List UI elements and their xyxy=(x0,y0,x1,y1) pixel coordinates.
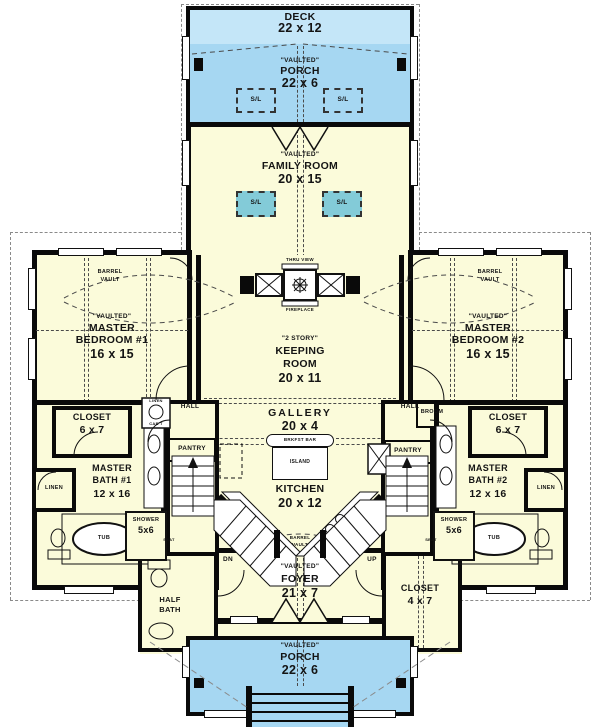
fireplace-wall xyxy=(240,276,254,294)
master-bath-2-label2: BATH #2 xyxy=(448,476,528,485)
toilet-icon xyxy=(148,560,170,569)
linen-label: LINEN xyxy=(33,486,75,492)
refrigerator-icon xyxy=(220,444,242,478)
master-bedroom-2-note: "VAULTED" xyxy=(438,314,538,321)
up-label: UP xyxy=(358,557,386,564)
master-bedroom-2-label: MASTER xyxy=(438,323,538,334)
foyer-closet-label: CLOSET xyxy=(390,584,450,593)
keeping-room-dims: 20 x 11 xyxy=(250,372,350,385)
tub-label: TUB xyxy=(474,536,514,542)
keeping-room-label: KEEPING xyxy=(250,346,350,357)
barrel-vault-label: BARREL xyxy=(278,536,322,541)
master-bedroom-1-dims: 16 x 15 xyxy=(62,348,162,361)
breakfast-bar-label: BRKFST BAR xyxy=(266,438,334,443)
fireplace-wall xyxy=(346,276,360,294)
barrel-vault-label: VAULT xyxy=(82,278,138,284)
family-room-dims: 20 x 15 xyxy=(250,173,350,186)
deck-dims: 22 x 12 xyxy=(255,22,345,35)
fireplace-cap xyxy=(282,264,318,269)
gallery-dims: 20 x 4 xyxy=(250,420,350,433)
tub-label: TUB xyxy=(84,536,124,542)
toilet-icon xyxy=(51,529,65,547)
closet-2-label: CLOSET xyxy=(473,413,543,422)
toilet-icon xyxy=(48,550,70,559)
master-bath-1-dims: 12 x 16 xyxy=(72,489,152,500)
foyer-closet-dims: 4 x 7 xyxy=(390,596,450,607)
toilet-icon xyxy=(151,569,167,587)
linen-label: LINEN xyxy=(525,486,567,492)
porch-top-note: "VAULTED" xyxy=(250,58,350,65)
roof-dash xyxy=(303,44,408,54)
front-door-chevron xyxy=(272,599,328,622)
barrel-vault-label: BARREL xyxy=(82,270,138,276)
closet-1-label: CLOSET xyxy=(57,413,127,422)
porch-bottom-dims: 22 x 6 xyxy=(250,664,350,677)
skylight-label: S/L xyxy=(323,97,363,104)
keeping-room-note: "2 STORY" xyxy=(250,336,350,343)
master-bedroom-1-note: "VAULTED" xyxy=(62,314,162,321)
eave-line xyxy=(150,642,248,708)
shower-dims: 5x6 xyxy=(124,526,168,535)
closet-2-dims: 6 x 7 xyxy=(473,425,543,436)
linen-cabinet-label: LINEN xyxy=(142,399,170,403)
barrel-vault-label: BARREL xyxy=(462,270,518,276)
sink-icon xyxy=(149,623,173,639)
fireplace-label: THRU VIEW xyxy=(268,258,332,263)
toilet-icon xyxy=(535,529,549,547)
foyer-dims: 21 x 7 xyxy=(250,587,350,600)
half-bath-label2: BATH xyxy=(148,606,192,614)
fireplace-label: FIREPLACE xyxy=(268,308,332,313)
down-label: DN xyxy=(214,557,242,564)
kitchen-dims: 20 x 12 xyxy=(250,497,350,510)
porch-bottom-note: "VAULTED" xyxy=(250,643,350,650)
linen-cabinet-label: CAB'T xyxy=(142,422,170,426)
skylight-label: S/L xyxy=(236,97,276,104)
skylight-label: S/L xyxy=(322,200,362,207)
barrel-vault-label: VAULT xyxy=(278,543,322,548)
closet-1-dims: 6 x 7 xyxy=(57,425,127,436)
foyer-label: FOYER xyxy=(250,574,350,585)
french-door-chevron xyxy=(272,127,328,150)
porch-bottom-label: PORCH xyxy=(250,652,350,663)
pantry-label: PANTRY xyxy=(384,448,432,455)
door-arc xyxy=(410,366,444,400)
door-arc xyxy=(170,258,192,280)
shower-dims: 5x6 xyxy=(432,526,476,535)
island-label: ISLAND xyxy=(272,460,328,465)
foyer-note: "VAULTED" xyxy=(250,564,350,571)
toilet-icon xyxy=(530,550,552,559)
family-room-note: "VAULTED" xyxy=(250,152,350,159)
master-bath-2-dims: 12 x 16 xyxy=(448,489,528,500)
porch-top-dims: 22 x 6 xyxy=(250,77,350,90)
porch-top-label: PORCH xyxy=(250,66,350,77)
hall-label: HALL xyxy=(170,404,210,411)
seat-label: SEAT xyxy=(420,538,442,542)
master-bedroom-1-label2: BEDROOM #1 xyxy=(52,335,172,346)
floor-plan: DECK 22 x 12 "VAULTED" PORCH 22 x 6 S/L … xyxy=(0,0,600,727)
broom-label: BROOM xyxy=(412,410,452,416)
skylight-label: S/L xyxy=(236,200,276,207)
kitchen-label: KITCHEN xyxy=(240,484,360,495)
master-bath-1-label2: BATH #1 xyxy=(72,476,152,485)
shower-label: SHOWER xyxy=(432,518,476,524)
shower-label: SHOWER xyxy=(124,518,168,524)
half-bath-label: HALF xyxy=(148,596,192,604)
fireplace-cap xyxy=(282,301,318,306)
master-bedroom-2-label2: BEDROOM #2 xyxy=(428,335,548,346)
door-arc xyxy=(156,366,190,400)
door-arc xyxy=(218,570,244,596)
eave-line xyxy=(352,642,450,708)
family-room-label: FAMILY ROOM xyxy=(230,161,370,172)
master-bedroom-2-dims: 16 x 15 xyxy=(438,348,538,361)
master-bedroom-1-label: MASTER xyxy=(62,323,162,334)
door-arc xyxy=(356,570,382,596)
master-bath-2-label: MASTER xyxy=(448,464,528,473)
seat-label: SEAT xyxy=(158,538,180,542)
master-bath-1-label: MASTER xyxy=(72,464,152,473)
roof-dash xyxy=(192,44,297,54)
gallery-label: GALLERY xyxy=(240,408,360,419)
keeping-room-label2: ROOM xyxy=(250,359,350,370)
pantry-label: PANTRY xyxy=(168,446,216,453)
barrel-vault-label: VAULT xyxy=(462,278,518,284)
